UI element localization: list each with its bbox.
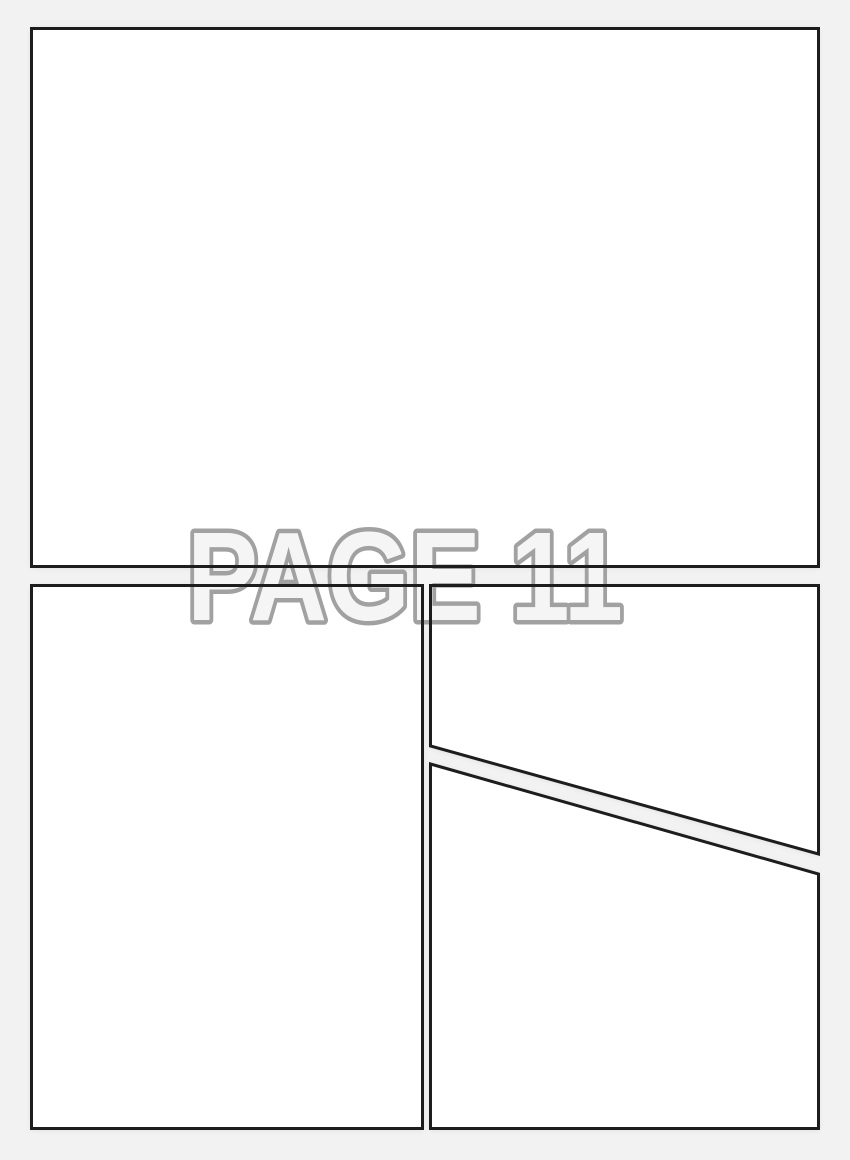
panel-bottom-left [32,586,423,1129]
panel-top [32,29,819,567]
comic-page-template: PAGE 11 [0,0,850,1160]
page-number-label: PAGE 11 [187,506,623,647]
page-canvas: PAGE 11 [0,0,850,1160]
